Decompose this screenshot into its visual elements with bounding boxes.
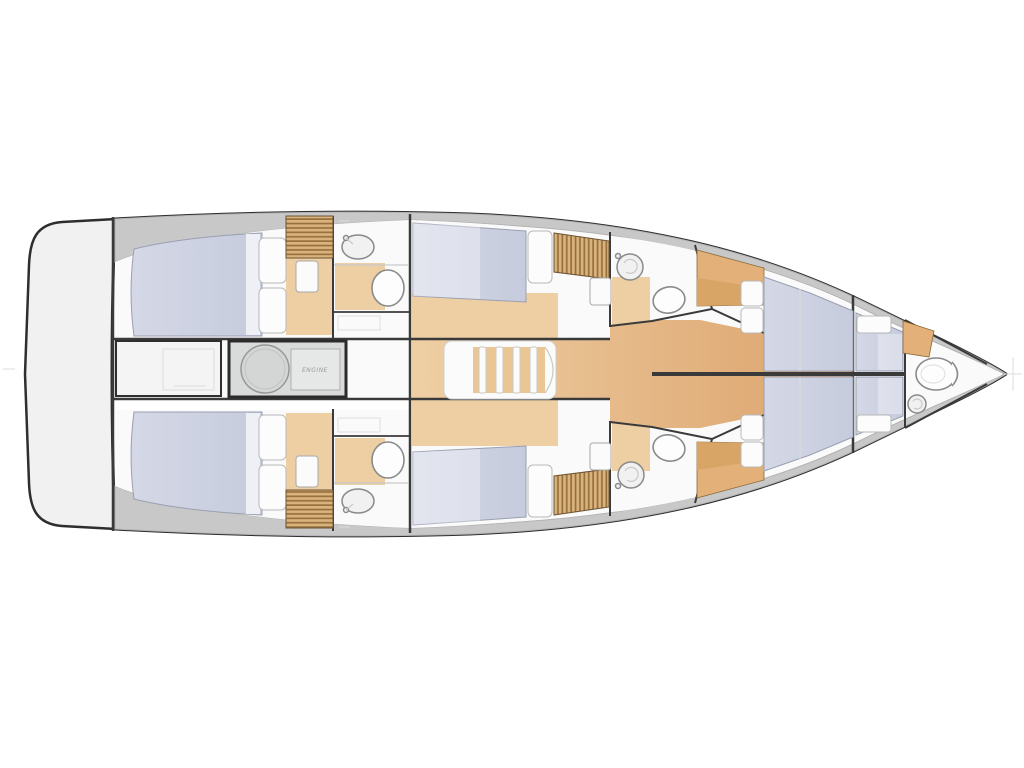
sink <box>908 395 926 413</box>
faucet <box>616 484 621 489</box>
pillow <box>259 288 286 333</box>
cabin-door <box>590 443 611 470</box>
head-floor <box>612 277 650 326</box>
swim-platform <box>25 219 116 529</box>
pillow <box>259 238 286 283</box>
cabin-floor <box>412 399 558 446</box>
pillow <box>741 281 763 306</box>
pillow <box>259 415 286 460</box>
yacht-floor-plan: ENGINE <box>0 0 1024 768</box>
pillow <box>741 308 763 333</box>
engine-label: ENGINE <box>302 367 328 374</box>
toilet <box>916 358 956 390</box>
sink <box>617 254 643 280</box>
cushion <box>857 316 891 333</box>
engine-compartment: ENGINE <box>116 341 346 397</box>
cabin-door <box>590 278 611 305</box>
cushion <box>857 415 891 432</box>
cabin-door <box>296 456 318 487</box>
companionway-stairs <box>444 341 556 399</box>
wardrobe-slats <box>286 490 333 528</box>
double-bed <box>131 233 262 336</box>
engine-flywheel <box>241 345 289 393</box>
pillow <box>259 465 286 510</box>
wardrobe-slats <box>286 216 333 258</box>
wood-cabinet <box>903 321 934 357</box>
pillow <box>741 442 763 467</box>
toilet <box>372 270 404 306</box>
sink <box>618 462 644 488</box>
floor-plan-canvas: ENGINE <box>0 0 1024 768</box>
double-bed <box>131 412 262 515</box>
pillow <box>528 231 552 283</box>
cabin-door <box>296 261 318 292</box>
pillow <box>741 415 763 440</box>
pillow <box>528 465 552 517</box>
wardrobe-slats <box>554 469 609 515</box>
toilet <box>372 442 404 478</box>
wardrobe-slats <box>554 233 609 279</box>
faucet <box>616 254 621 259</box>
